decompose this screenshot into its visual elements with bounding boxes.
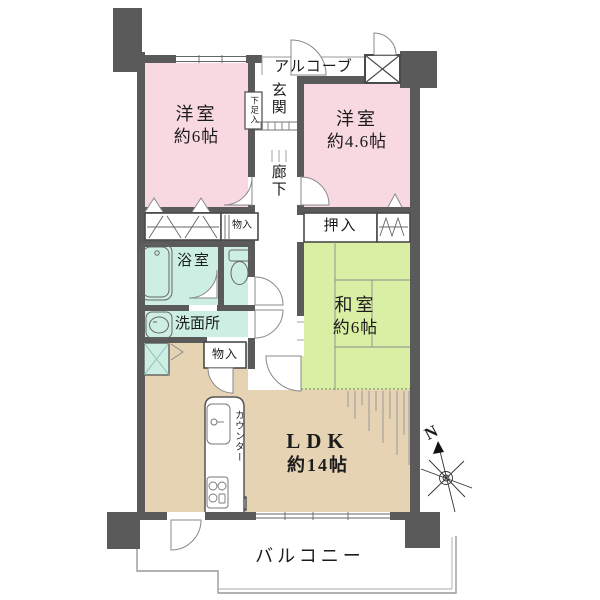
entrance-label: 玄関	[268, 82, 287, 116]
washroom-label: 洗面所	[175, 315, 220, 334]
room-name: 洋室	[304, 108, 410, 131]
stove-icon	[207, 477, 228, 508]
room-label-japanese: 和室 約6帖	[301, 294, 410, 338]
room-size: 約6帖	[145, 126, 248, 147]
hanger-closet-box	[377, 213, 410, 242]
shoe-box-label: 下足入	[249, 96, 260, 125]
pillar-bottom-left	[107, 512, 140, 549]
counter-label: カウンター	[231, 410, 243, 463]
balcony-door-arc	[171, 520, 201, 550]
room-size: 約4.6帖	[304, 131, 410, 152]
compass-icon	[421, 441, 472, 512]
room-label-western46: 洋室 約4.6帖	[304, 108, 410, 152]
japanese-room-door-arc	[266, 356, 301, 391]
room-size: 約14帖	[246, 454, 390, 477]
washroom-door-arc	[255, 310, 283, 338]
room-name: LDK	[246, 428, 390, 454]
floorplan-drawing	[0, 0, 600, 600]
oshiire-label: 押入	[304, 217, 377, 236]
toilet-door-arc	[255, 277, 283, 305]
kitchen-sink-icon	[207, 404, 230, 444]
room-name: 洋室	[145, 103, 248, 126]
pillar-bottom-right	[405, 512, 440, 548]
corridor-label: 廊下	[268, 164, 287, 198]
room-name: 和室	[301, 294, 410, 317]
storage-small-label: 物入	[228, 220, 256, 233]
balcony-label: バルコニー	[230, 545, 390, 568]
alcove-label: アルコーブ	[262, 58, 365, 77]
alcove-side-door-arc	[374, 33, 396, 55]
storage-ldk-label: 物入	[204, 347, 246, 362]
room-label-ldk: LDK 約14帖	[246, 428, 390, 477]
bathroom-label: 浴室	[177, 252, 211, 271]
compass-needle-tip	[433, 441, 444, 454]
room-size: 約6帖	[301, 317, 410, 338]
entrance-step-lines	[255, 122, 297, 162]
floorplan-canvas: 洋室 約6帖 洋室 約4.6帖 和室 約6帖 LDK 約14帖 アルコーブ 玄関…	[0, 0, 600, 600]
room-label-western6: 洋室 約6帖	[145, 103, 248, 147]
